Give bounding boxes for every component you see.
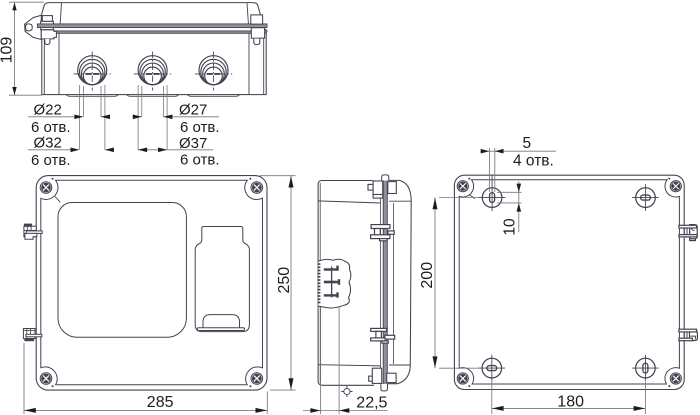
svg-text:6 отв.: 6 отв. (31, 152, 71, 169)
svg-text:Ø22: Ø22 (34, 102, 62, 119)
svg-text:22,5: 22,5 (356, 394, 387, 411)
svg-text:Ø27: Ø27 (179, 102, 207, 119)
svg-text:6 отв.: 6 отв. (31, 119, 71, 136)
svg-text:4 отв.: 4 отв. (513, 153, 554, 170)
svg-text:Ø32: Ø32 (34, 135, 62, 152)
svg-text:180: 180 (557, 394, 584, 411)
svg-text:6 отв.: 6 отв. (180, 119, 220, 136)
svg-text:10: 10 (502, 218, 519, 236)
svg-text:Ø37: Ø37 (179, 135, 207, 152)
svg-text:285: 285 (147, 394, 174, 411)
svg-text:250: 250 (276, 267, 293, 294)
svg-text:109: 109 (0, 37, 15, 64)
svg-text:5: 5 (523, 135, 532, 152)
svg-text:200: 200 (419, 262, 436, 289)
svg-text:6 отв.: 6 отв. (180, 151, 220, 168)
